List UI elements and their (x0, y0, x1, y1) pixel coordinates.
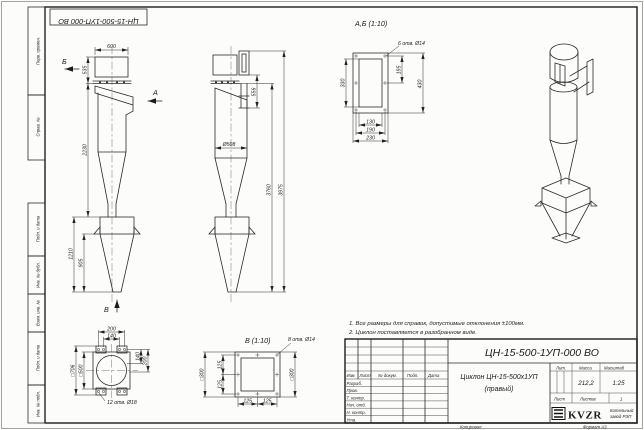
notes: 1. Все размеры для справок, допустимые о… (348, 321, 525, 336)
company-line1: Котельный (610, 408, 634, 413)
copied-label: Копировал (460, 425, 482, 430)
dim-535: 535 (83, 66, 89, 75)
footprint-view: 200 140 140 200 □706 □500 12 отв. Ø18 (71, 327, 151, 407)
company-logo: KVZR Котельный завод РЭП (552, 408, 634, 422)
row-prov: Пров. (347, 388, 358, 393)
logo-text: KVZR (568, 410, 602, 422)
row-utv: Утв. (347, 417, 357, 422)
col-sign: Подп. (407, 373, 418, 378)
section-ab-title: А,Б (1:10) (354, 19, 387, 28)
dim-1210: 1210 (69, 248, 75, 260)
dim-125: 125 (243, 399, 252, 405)
dim-2230: 2230 (83, 144, 89, 157)
dim-3975: 3975 (279, 184, 285, 196)
drawing-canvas: Перв. примен. Справ. № Подп. и дата Инв.… (0, 0, 644, 430)
frame-label: Взам. инв. № (36, 300, 41, 326)
front-view: А Б В 600 535 2230 1210 905 (62, 44, 162, 314)
col-date: Дата (427, 373, 440, 378)
mass-label: Масса (579, 366, 592, 371)
sheets-value: 1 (620, 397, 623, 402)
section-ab-view: А,Б (1:10) 6 отв. Ø14 330 195 430 130 19… (341, 19, 426, 143)
mass-value: 212,2 (577, 380, 594, 387)
dim-230: 230 (365, 136, 375, 142)
format-label: Формат А3 (583, 425, 607, 430)
arrow-a-label: А (152, 88, 158, 97)
dim-200: 200 (106, 327, 116, 333)
dim-330: 330 (341, 79, 347, 88)
dim-dia508: Ø508 (222, 142, 236, 148)
lit-label: Лит. (555, 366, 566, 371)
frame-left-stamps: Перв. примен. Справ. № Подп. и дата Инв.… (28, 7, 45, 423)
dim-sq706: □706 (71, 364, 77, 376)
row-nkontr: Н. контр. (347, 410, 366, 415)
part-name-line1: Циклон ЦН-15-500х1УП (460, 374, 538, 381)
row-nachotd: Нач. отд. (347, 403, 366, 408)
dim-556: 556 (252, 88, 258, 97)
arrow-v-label: В (104, 305, 109, 314)
dim-125: 125 (218, 361, 224, 370)
dim-600: 600 (107, 44, 116, 50)
designation: ЦН-15-500-1УП-000 ВО (485, 347, 599, 359)
frame-label: Подп. и дата (36, 344, 41, 371)
row-razrab: Разраб. (347, 381, 363, 386)
dim-195: 195 (397, 66, 403, 75)
row-tkontr: Т. контр. (347, 395, 366, 400)
note-line-2: 2. Циклон поставляется в разобранном вид… (348, 330, 477, 336)
logo-bars-icon (554, 410, 563, 417)
holes-note-12: 12 отв. Ø18 (107, 400, 137, 406)
dim-sq300: □300 (290, 368, 296, 380)
note-line-1: 1. Все размеры для справок, допустимые о… (349, 321, 525, 327)
col-doc: № докум. (378, 373, 397, 378)
dim-sq500: □500 (79, 364, 85, 376)
bottom-strip: Копировал Формат А3 (460, 425, 607, 430)
dim-130: 130 (366, 120, 375, 126)
side-view: Ø508 556 3760 3975 (209, 46, 286, 304)
frame-label: Подп. и дата (36, 215, 41, 242)
dim-140: 140 (107, 334, 116, 340)
dim-190: 190 (366, 128, 375, 134)
frame-label: Справ. № (36, 117, 41, 136)
isometric-view (535, 44, 597, 243)
corner-designation: ЦН-15-500-1УП-000 ВО (58, 17, 138, 26)
dim-sq300: □300 (200, 368, 206, 380)
col-izm: Изм. (347, 373, 356, 378)
frame-label: Перв. примен. (36, 37, 41, 65)
holes-note-8: 8 отв. Ø14 (288, 337, 315, 343)
part-name-line2: (правый) (485, 385, 514, 393)
dim-3760: 3760 (267, 184, 273, 196)
view-v-title: В (1:10) (245, 336, 271, 345)
corner-stamp: ЦН-15-500-1УП-000 ВО (50, 9, 147, 26)
sheets-label: Листов (579, 397, 596, 402)
dim-905: 905 (79, 259, 85, 268)
dim-140r: 140 (136, 352, 142, 361)
sheet-label: Лист (553, 397, 565, 402)
scale-value: 1:25 (612, 380, 625, 387)
drawing-sheet: Перв. примен. Справ. № Подп. и дата Инв.… (0, 0, 644, 430)
company-line2: завод РЭП (609, 414, 632, 419)
arrow-b-label: Б (62, 57, 67, 66)
scale-label: Масштаб (604, 366, 625, 371)
frame-label: Инв. № дубл. (36, 262, 41, 288)
frame-label: Инв. № подл. (36, 391, 41, 417)
dim-125: 125 (263, 399, 272, 405)
holes-note-6: 6 отв. Ø14 (398, 41, 425, 47)
dim-200r: 200 (143, 357, 149, 367)
view-v: В (1:10) 8 отв. Ø14 125 125 125 125 □300… (200, 336, 316, 407)
col-list: Лист (359, 373, 371, 378)
dim-430: 430 (418, 80, 424, 89)
title-block: ЦН-15-500-1УП-000 ВО Циклон ЦН-15-500х1У… (345, 339, 637, 423)
dim-125: 125 (218, 380, 224, 389)
